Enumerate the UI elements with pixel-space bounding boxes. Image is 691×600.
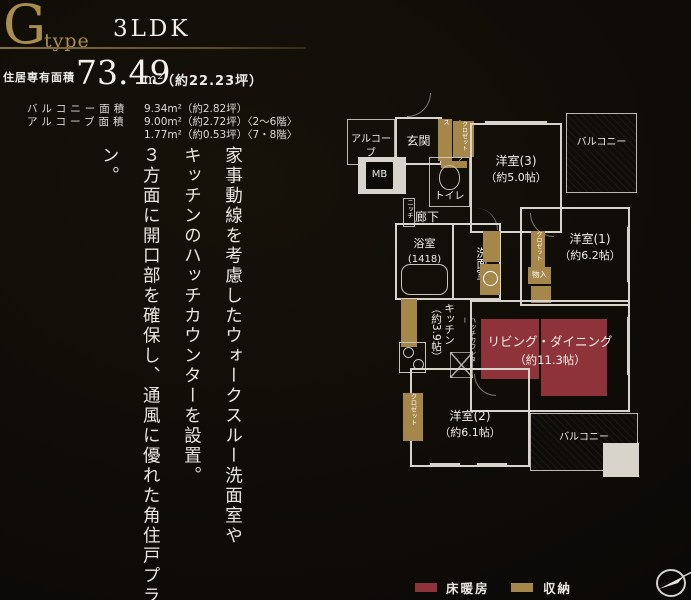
corner-wall-block bbox=[603, 443, 639, 477]
room-western2-label: 洋室(2) bbox=[450, 409, 491, 423]
room-western2-size: （約6.1帖） bbox=[439, 426, 501, 439]
room-western2: 洋室(2) （約6.1帖） bbox=[410, 368, 530, 467]
room-living-label: リビング・ダイニング bbox=[487, 334, 612, 349]
balcony-top-label: バルコニー bbox=[567, 136, 636, 150]
floor-heating-label: 床暖房 bbox=[446, 578, 490, 597]
window bbox=[627, 317, 630, 375]
room-living-size: （約11.3帖） bbox=[514, 353, 586, 367]
window bbox=[430, 463, 460, 467]
toilet-fixture bbox=[439, 165, 460, 190]
gold-divider bbox=[0, 47, 306, 49]
room-western1-label: 洋室(1) bbox=[570, 232, 611, 246]
window bbox=[477, 463, 507, 467]
entrance-door-arc bbox=[407, 93, 431, 117]
copy-line-1: 家事動線を考慮したウォークスルー洗面室や bbox=[211, 146, 252, 600]
monoire-label: 物入 bbox=[528, 270, 551, 280]
room-bath-label: 浴室 bbox=[414, 237, 436, 250]
layout-name: 3LDK bbox=[113, 16, 191, 42]
bathtub bbox=[401, 264, 448, 295]
room-western3-label: 洋室(3) bbox=[496, 154, 537, 168]
closet-western1-label: クロゼット bbox=[531, 231, 545, 261]
kitchen-storage bbox=[401, 299, 417, 347]
room-mb-label: MB bbox=[366, 168, 393, 182]
floor-heating-swatch bbox=[415, 583, 437, 592]
shoe-box: シューズボックス bbox=[438, 119, 452, 161]
main-area-tsubo: （約22.23坪） bbox=[161, 70, 263, 89]
catch-copy: 家事動線を考慮したウォークスルー洗面室や キッチンのハッチカウンターを設置。 ３… bbox=[88, 146, 253, 600]
room-living-label-block: リビング・ダイニング （約11.3帖） bbox=[475, 333, 625, 368]
window bbox=[627, 227, 630, 282]
main-area-label: 住居専有面積 bbox=[3, 69, 75, 85]
kitchen-size: （約3.9帖） bbox=[430, 303, 442, 362]
storage-label: 収納 bbox=[543, 578, 572, 597]
washer-space bbox=[480, 264, 500, 295]
burner-icon bbox=[403, 347, 414, 358]
room-toilet: トイレ bbox=[429, 157, 470, 207]
copy-line-3: ３方面に開口部を確保し、通風に優れた角住戸プラン。 bbox=[88, 146, 170, 600]
closet-western2-label: クロゼット bbox=[403, 393, 423, 426]
floorplan: アルコーブ 玄関 MB シューズボックス クロゼット トイレ ニッチ 廊下 bbox=[345, 105, 642, 480]
room-entrance-label: 玄関 bbox=[397, 133, 440, 149]
room-toilet-label: トイレ bbox=[430, 190, 469, 204]
room-western3-size: （約5.0帖） bbox=[485, 171, 547, 184]
alcove-area-value-2: 1.77m²（約0.53坪）〈7・8階〉 bbox=[144, 127, 297, 142]
entrance-closet-label: クロゼット bbox=[459, 121, 469, 151]
floorplan-page: G type 3LDK 住居専有面積 73.49 m² （約22.23坪） バル… bbox=[0, 0, 691, 600]
room-mb: MB bbox=[366, 162, 393, 189]
alcove-area-label: アルコーブ面積 bbox=[27, 114, 128, 129]
balcony-top: バルコニー bbox=[566, 113, 637, 193]
window bbox=[485, 121, 547, 124]
closet-western1: クロゼット bbox=[531, 231, 545, 267]
monoire: 物入 bbox=[528, 267, 551, 284]
kitchen-label: キッチン bbox=[443, 303, 455, 345]
linen-storage bbox=[483, 231, 500, 262]
closet-western2: クロゼット bbox=[403, 393, 423, 441]
storage-swatch bbox=[511, 583, 533, 592]
compass-icon bbox=[654, 567, 691, 599]
copy-line-2: キッチンのハッチカウンターを設置。 bbox=[170, 146, 211, 600]
washer-icon bbox=[483, 271, 498, 286]
room-western1-size: （約6.2帖） bbox=[559, 249, 621, 262]
room-bath: 浴室 (1418) bbox=[395, 223, 454, 300]
type-letter: G bbox=[3, 0, 46, 52]
room-alcove-label: アルコーブ bbox=[348, 133, 394, 160]
niche-label: ニッチ bbox=[405, 199, 414, 219]
door-arc bbox=[474, 374, 496, 396]
